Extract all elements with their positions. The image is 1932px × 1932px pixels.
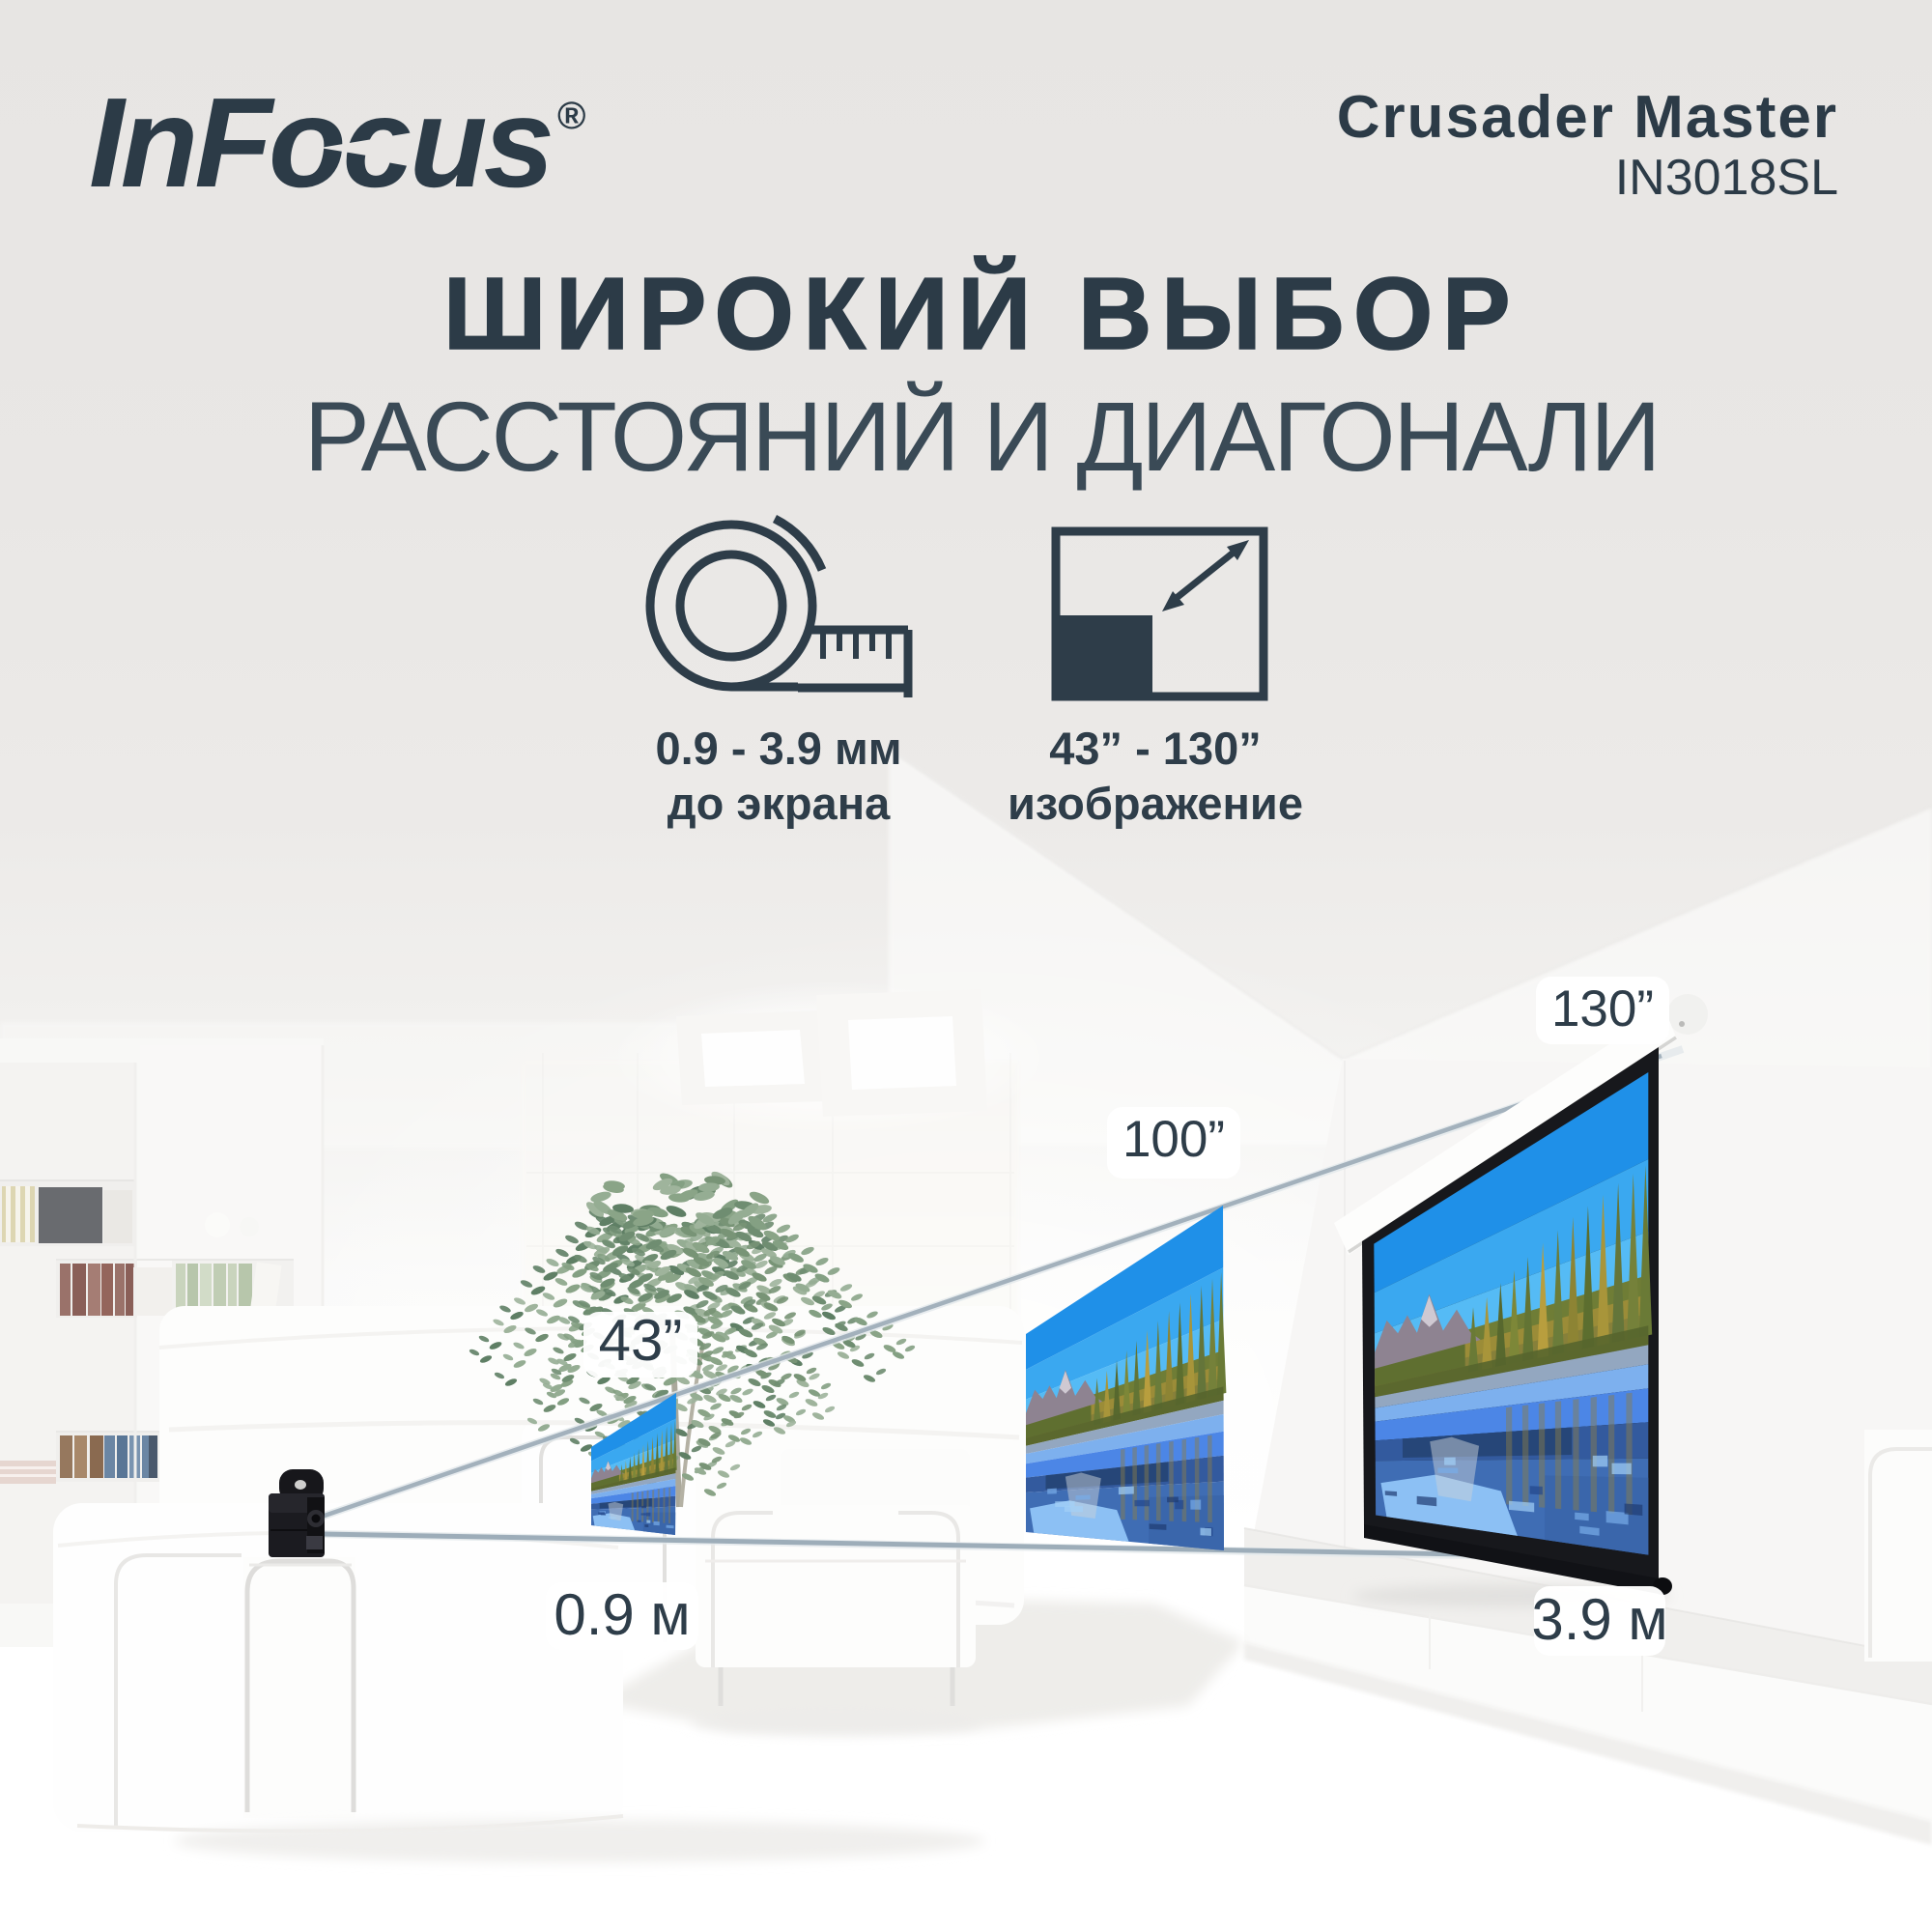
svg-text:®: ® [557, 95, 585, 137]
svg-text:43” - 130”: 43” - 130” [1049, 723, 1261, 774]
svg-text:IN3018SL: IN3018SL [1615, 150, 1838, 206]
svg-text:до экрана: до экрана [668, 778, 891, 829]
svg-text:InFocus: InFocus [89, 71, 551, 213]
svg-text:130”: 130” [1551, 980, 1654, 1037]
svg-text:43”: 43” [599, 1308, 683, 1373]
svg-text:Crusader Master: Crusader Master [1337, 84, 1838, 151]
svg-text:0.9 м: 0.9 м [554, 1582, 690, 1647]
svg-text:ШИРОКИЙ ВЫБОР: ШИРОКИЙ ВЫБОР [443, 256, 1520, 371]
svg-text:0.9 - 3.9 мм: 0.9 - 3.9 мм [655, 723, 901, 774]
svg-text:3.9 м: 3.9 м [1531, 1587, 1667, 1652]
svg-text:100”: 100” [1122, 1111, 1225, 1168]
svg-text:РАССТОЯНИЙ И ДИАГОНАЛИ: РАССТОЯНИЙ И ДИАГОНАЛИ [304, 382, 1660, 492]
svg-text:изображение: изображение [1008, 778, 1303, 829]
